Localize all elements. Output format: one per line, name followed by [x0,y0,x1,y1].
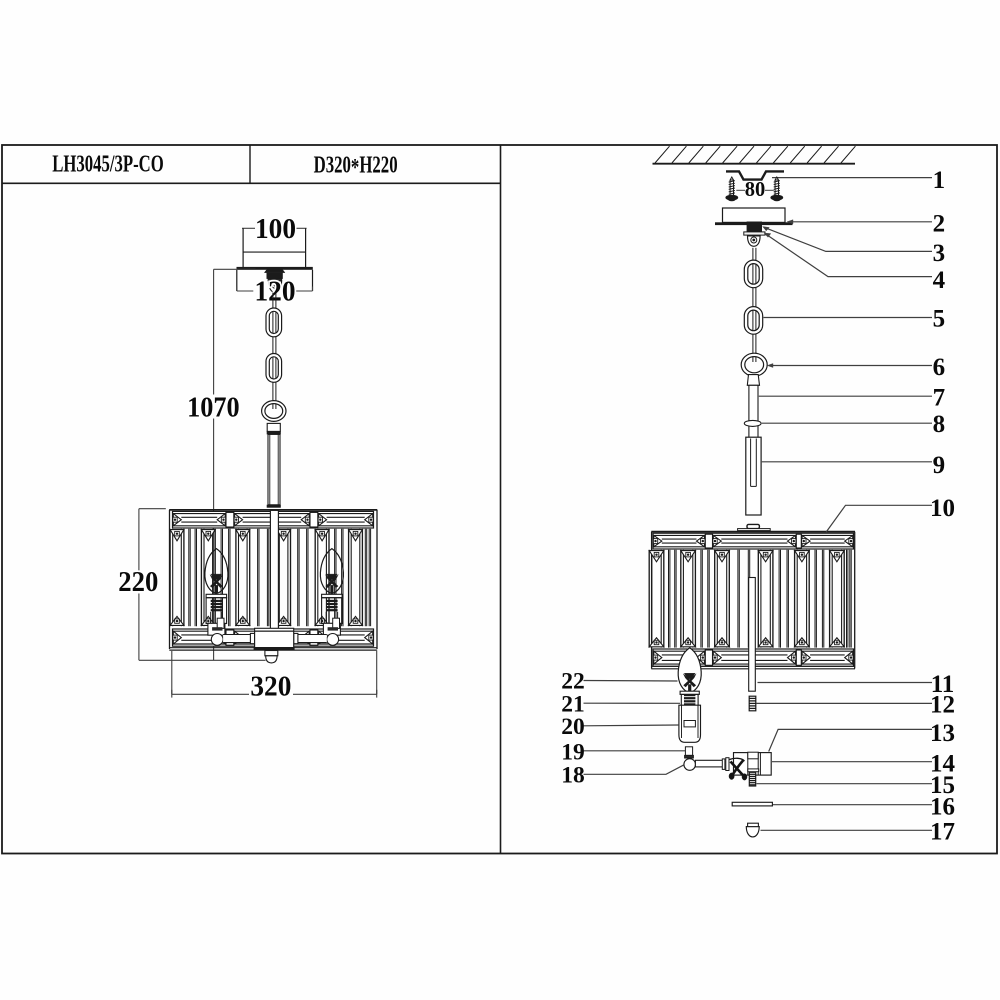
svg-text:10: 10 [930,495,955,522]
svg-text:120: 120 [255,275,296,307]
svg-text:1: 1 [933,167,946,194]
svg-text:17: 17 [930,819,955,846]
svg-text:4: 4 [933,267,946,294]
svg-text:19: 19 [561,739,585,765]
svg-text:13: 13 [930,720,955,747]
svg-text:220: 220 [118,566,158,598]
svg-text:D320*H220: D320*H220 [314,152,398,182]
svg-text:1070: 1070 [187,392,240,424]
svg-text:12: 12 [930,692,955,719]
svg-text:7: 7 [933,385,946,412]
svg-text:9: 9 [933,452,946,479]
svg-text:2: 2 [933,210,946,237]
svg-text:18: 18 [561,763,585,789]
svg-text:16: 16 [930,793,955,820]
svg-text:5: 5 [933,306,946,333]
svg-text:8: 8 [933,411,946,438]
svg-text:6: 6 [933,354,946,381]
svg-text:80: 80 [745,177,766,201]
svg-text:320: 320 [250,671,291,703]
svg-text:LH3045/3P-CO: LH3045/3P-CO [52,151,164,178]
svg-text:100: 100 [255,213,296,245]
svg-text:20: 20 [561,714,585,740]
svg-text:3: 3 [933,240,946,267]
